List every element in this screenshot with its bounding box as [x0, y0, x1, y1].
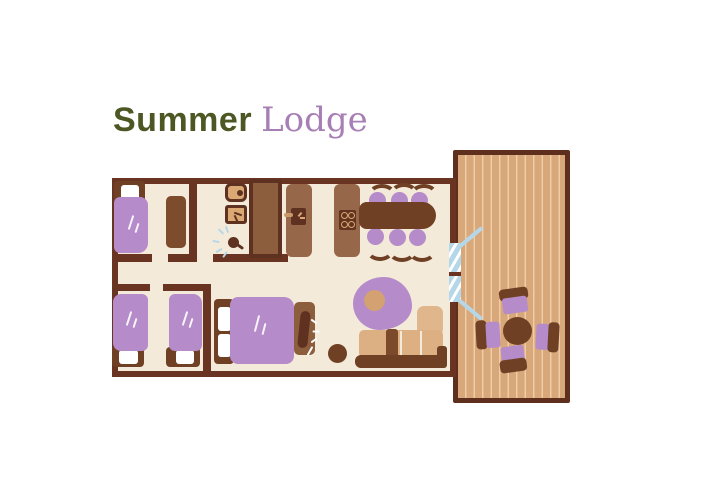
kitchen-sink: [291, 208, 306, 225]
deck-chair-left: [475, 319, 502, 350]
dining-chair-back: [408, 240, 436, 262]
toilet: [225, 183, 247, 202]
deck-chair-bottom: [497, 344, 528, 375]
duvet-highlight: [261, 323, 266, 335]
single-bed-2-duvet: [113, 294, 148, 351]
double-bed-duvet: [230, 297, 294, 364]
single-bed-3-duvet: [169, 294, 202, 351]
deck-chair-back: [547, 322, 560, 353]
deck-table: [503, 317, 532, 345]
hob-burner: [341, 221, 348, 228]
hob-burner: [341, 212, 348, 219]
pouffe: [328, 344, 347, 363]
duvet-highlight: [135, 223, 140, 233]
sofa-base: [355, 355, 447, 368]
wall-bedroom1-hall-left: [115, 254, 152, 262]
duvet-highlight: [189, 318, 194, 328]
page: SummerLodge: [0, 0, 707, 500]
wall-twinroom-doubleroom: [203, 284, 211, 371]
sofa-seat: [359, 330, 443, 358]
kitchen-tap: [284, 213, 293, 217]
bathroom-sink: [225, 205, 247, 224]
deck-chair-top: [498, 286, 531, 316]
hob: [339, 210, 356, 230]
deck-chair-right: [535, 321, 560, 352]
deck-chair-seat: [502, 295, 529, 314]
single-bed-1-duvet: [114, 197, 148, 253]
sofa-seam: [420, 331, 422, 357]
hob-burner: [348, 221, 355, 228]
dining-table: [359, 202, 436, 229]
duvet-highlight: [182, 311, 189, 326]
dining-chair-back: [410, 184, 438, 206]
sink-tap: [234, 215, 239, 222]
deck-chair-back: [499, 357, 528, 374]
sink-sparkle: [300, 217, 305, 219]
shower-cubicle: [249, 179, 282, 258]
wall-twinroom-top-left: [114, 284, 150, 291]
wall-bedroom1-hall-right: [168, 254, 197, 262]
duvet-highlight: [126, 311, 133, 326]
hob-burner: [348, 212, 355, 219]
sofa-armrest-right: [437, 346, 447, 368]
duvet-highlight: [128, 215, 135, 230]
round-chair-cushion: [364, 290, 385, 311]
single-bed-2-pillow: [119, 350, 138, 364]
lamp-ray: [313, 331, 320, 333]
toilet-cistern-dot: [237, 190, 243, 196]
duvet-highlight: [133, 318, 138, 328]
deck-chair-seat: [485, 321, 500, 348]
single-bed-3-pillow: [176, 350, 194, 364]
wardrobe: [166, 196, 186, 248]
sofa-seam: [400, 331, 402, 357]
duvet-highlight: [254, 315, 260, 332]
wall-bedroom1-bathroom: [189, 184, 197, 262]
floor-plan-illustration: [0, 0, 707, 500]
